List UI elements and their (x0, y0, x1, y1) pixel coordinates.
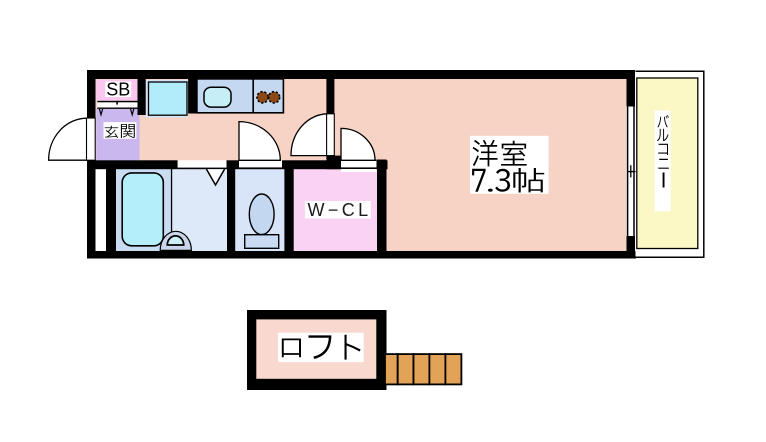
svg-text:SB: SB (106, 80, 130, 100)
svg-text:W−CL: W−CL (307, 200, 371, 220)
